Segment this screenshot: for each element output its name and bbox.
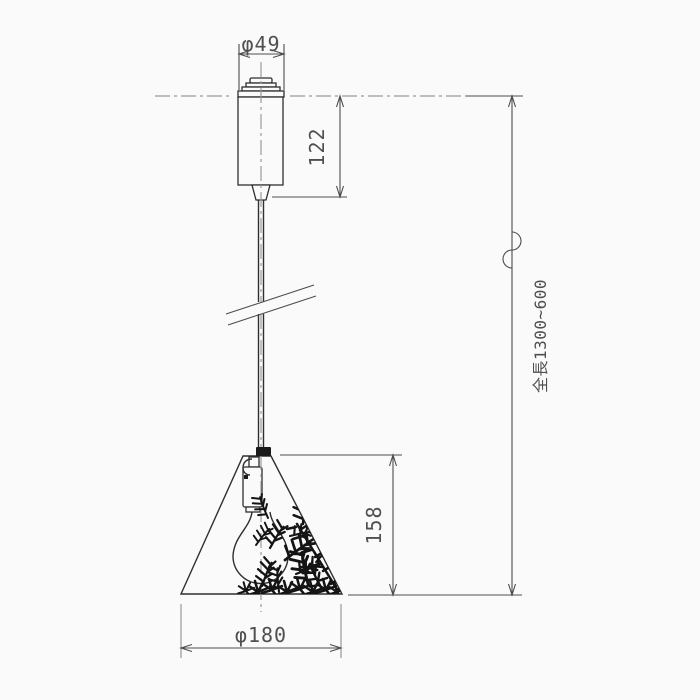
shade-height-label: 158 (362, 505, 386, 544)
shade-diameter-label: φ180 (235, 623, 287, 647)
canopy-height-label: 122 (305, 127, 329, 166)
canopy-diameter-label: φ49 (241, 32, 280, 56)
pendant-lamp-drawing: φ49 122 (0, 0, 700, 700)
overall-length-label: 全長1300~600 (531, 279, 550, 393)
socket-detail (244, 475, 248, 479)
technical-drawing-canvas: φ49 122 (0, 0, 700, 700)
cord-anchor (256, 447, 271, 456)
